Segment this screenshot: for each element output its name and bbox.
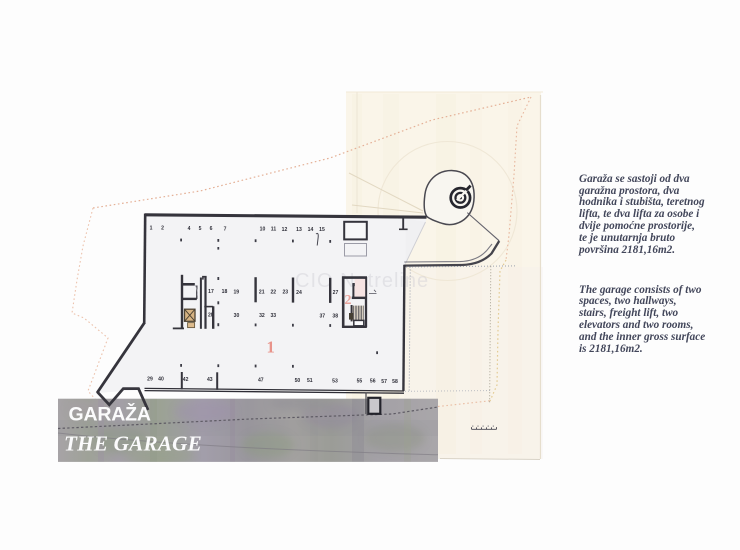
svg-text:6: 6 [210, 226, 213, 232]
svg-text:51: 51 [307, 378, 313, 384]
svg-text:53: 53 [332, 378, 338, 384]
svg-text:19: 19 [233, 289, 239, 295]
svg-text:27: 27 [333, 290, 339, 296]
svg-text:12: 12 [282, 227, 288, 233]
svg-text:42: 42 [183, 377, 189, 383]
svg-text:40: 40 [158, 377, 164, 383]
svg-text:57: 57 [381, 379, 387, 385]
svg-text:32: 32 [259, 313, 265, 319]
svg-text:21: 21 [259, 290, 265, 296]
svg-text:29: 29 [147, 377, 153, 383]
svg-text:7: 7 [224, 226, 227, 232]
svg-text:37: 37 [319, 314, 325, 320]
svg-text:55: 55 [357, 379, 363, 385]
svg-text:1: 1 [266, 338, 274, 357]
svg-text:1: 1 [150, 226, 153, 232]
svg-text:14: 14 [308, 227, 314, 233]
svg-text:15: 15 [319, 227, 325, 233]
svg-text:4: 4 [188, 226, 191, 232]
svg-text:30: 30 [234, 313, 240, 319]
svg-text:11: 11 [271, 227, 277, 233]
svg-text:24: 24 [296, 290, 302, 296]
svg-text:5: 5 [199, 226, 202, 232]
svg-text:38: 38 [332, 314, 338, 320]
svg-text:2: 2 [345, 293, 352, 308]
svg-text:33: 33 [270, 313, 276, 319]
svg-text:2: 2 [161, 226, 164, 232]
svg-text:58: 58 [392, 379, 398, 385]
svg-text:GARAŽA: GARAŽA [69, 402, 151, 426]
svg-text:10: 10 [260, 227, 266, 233]
svg-text:THE GARAGE: THE GARAGE [64, 432, 202, 456]
svg-text:18: 18 [222, 289, 228, 295]
svg-text:17: 17 [208, 289, 214, 295]
svg-text:22: 22 [270, 290, 276, 296]
svg-text:47: 47 [258, 378, 264, 384]
svg-text:13: 13 [296, 227, 302, 233]
svg-text:56: 56 [370, 379, 376, 385]
svg-text:23: 23 [282, 290, 288, 296]
svg-text:43: 43 [207, 377, 213, 383]
svg-text:50: 50 [295, 378, 301, 384]
